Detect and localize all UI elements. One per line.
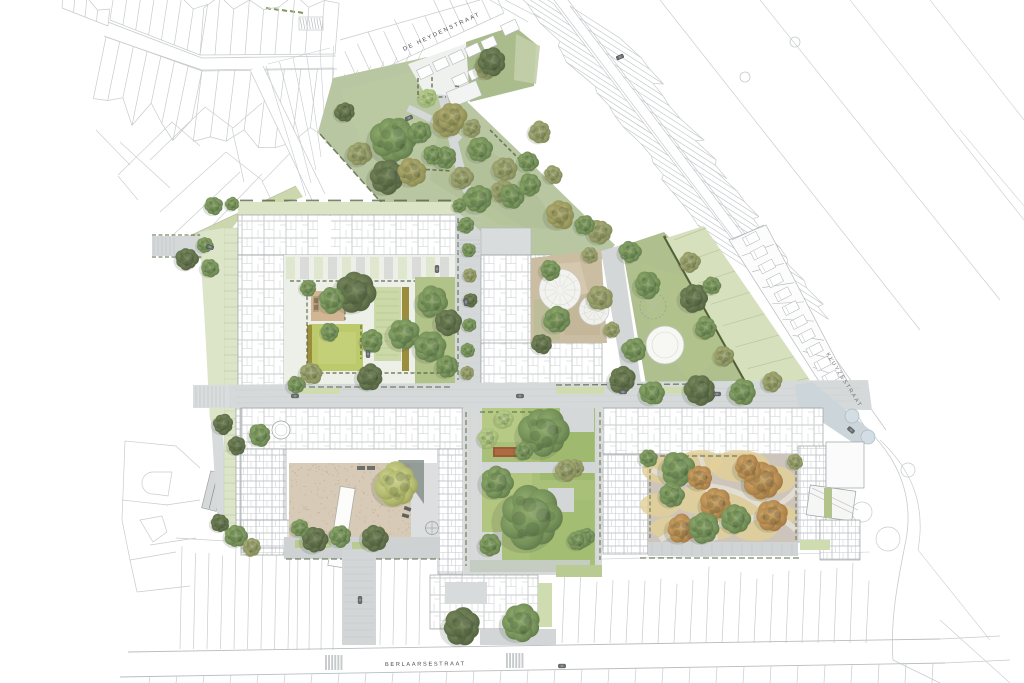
- svg-text:BERLAARSESTRAAT: BERLAARSESTRAAT: [385, 661, 466, 668]
